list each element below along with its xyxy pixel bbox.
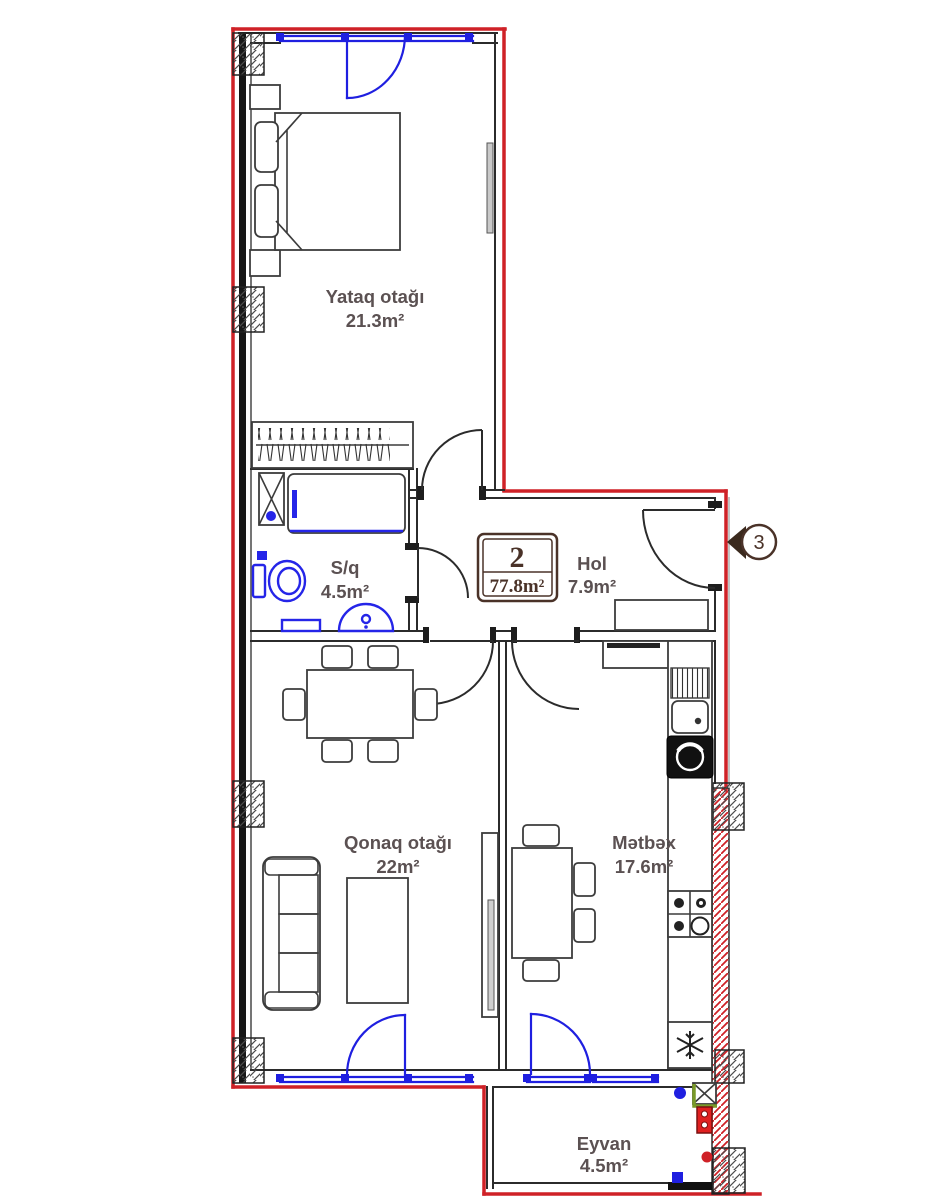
bathroom-label: S/q: [331, 557, 360, 578]
blue-dot: [674, 1087, 686, 1099]
floor-plan-page: Yataq otağı 21.3m² S/q 4.5m² Hol 7.9m² Q…: [0, 0, 938, 1200]
chair: [322, 740, 352, 762]
bathtub: [288, 474, 405, 533]
dining-set: [283, 646, 437, 762]
bath-mat: [282, 620, 320, 631]
chair: [523, 825, 559, 846]
kitchen-wall-cabinet: [603, 641, 670, 668]
chair: [523, 960, 559, 981]
chair: [368, 740, 398, 762]
hall-cabinet: [615, 600, 708, 630]
red-dot: [702, 1152, 713, 1163]
kitchen-door: [512, 641, 579, 709]
kitchen-balcony-door: [531, 1014, 590, 1074]
chair: [283, 689, 305, 720]
floor-plan-canvas: Yataq otağı 21.3m² S/q 4.5m² Hol 7.9m² Q…: [0, 0, 938, 1200]
bedroom-label: Yataq otağı: [326, 286, 425, 307]
hall-furniture: [615, 600, 708, 630]
fridge: [668, 1022, 712, 1068]
bathroom-fixtures: [253, 473, 405, 631]
cooktop: [668, 891, 712, 937]
nightstand: [250, 250, 280, 276]
chair: [322, 646, 352, 668]
kitchen-sink: [672, 701, 708, 733]
living-door: [430, 641, 493, 704]
kitchen-balcony-door-sill: [523, 1074, 592, 1082]
washing-machine: [259, 473, 284, 525]
bedroom-door: [422, 430, 482, 490]
blue-square: [672, 1172, 683, 1183]
vent-shaft: [693, 1083, 717, 1106]
living-window: [276, 1074, 473, 1082]
hall-area: 7.9m²: [568, 576, 616, 597]
apartment-badge: 2 77.8m²: [478, 534, 557, 601]
oven: [667, 736, 713, 778]
kitchen-table-set: [512, 825, 595, 981]
apartment-total-area: 77.8m²: [490, 576, 545, 597]
electric-panel: [697, 1107, 712, 1133]
living-balcony-door: [347, 1015, 405, 1075]
bed: [275, 113, 400, 250]
left-wall-core: [239, 33, 246, 1083]
red-hatched-wall: [712, 788, 729, 1194]
bedroom-furniture: [250, 85, 493, 468]
hall-label: Hol: [577, 553, 607, 574]
dining-table: [307, 670, 413, 738]
kitchen-window: [589, 1074, 659, 1082]
radiator: [487, 143, 493, 233]
kitchen-table: [512, 848, 572, 958]
bedroom-window: [276, 33, 473, 41]
tv-unit: [482, 833, 498, 1017]
bedroom-balcony-door: [347, 34, 405, 98]
balcony-thick-wall: [668, 1182, 712, 1190]
living-area: 22m²: [376, 856, 419, 877]
toilet: [253, 551, 305, 601]
chair: [415, 689, 437, 720]
bathroom-door: [418, 548, 468, 598]
chair: [574, 863, 595, 896]
sofa: [263, 857, 320, 1010]
entrance-number: 3: [753, 532, 764, 554]
kitchen-fixtures: [512, 641, 713, 1068]
coffee-table: [347, 878, 408, 1003]
bedroom-area: 21.3m²: [346, 310, 405, 331]
wardrobe: [252, 422, 413, 468]
nightstand: [250, 85, 280, 109]
pillow: [255, 185, 278, 237]
dish-drainer: [671, 668, 709, 698]
entrance-marker: 3: [727, 525, 776, 559]
entrance-door: [643, 510, 715, 588]
apartment-number: 2: [510, 541, 525, 574]
bathroom-sink: [339, 604, 393, 631]
balcony-area: 4.5m²: [580, 1155, 628, 1176]
chair: [574, 909, 595, 942]
kitchen-area: 17.6m²: [615, 856, 674, 877]
balcony-label: Eyvan: [577, 1133, 632, 1154]
bathroom-area: 4.5m²: [321, 581, 369, 602]
living-label: Qonaq otağı: [344, 832, 452, 853]
kitchen-label: Mətbəx: [612, 832, 676, 853]
chair: [368, 646, 398, 668]
pillow: [255, 122, 278, 172]
balcony-items: [672, 1083, 717, 1183]
